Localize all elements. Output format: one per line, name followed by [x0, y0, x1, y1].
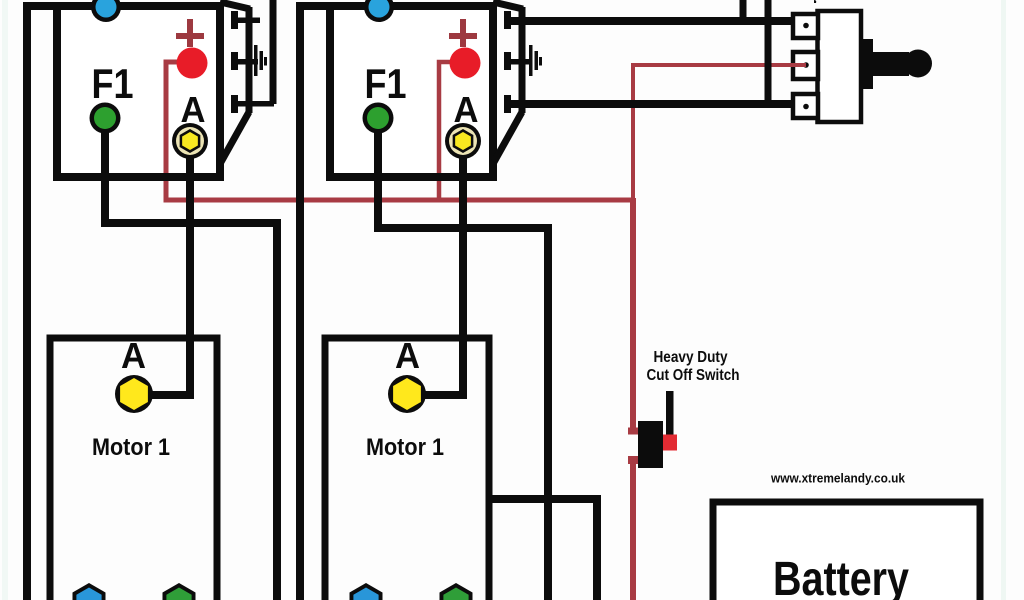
svg-text:Motor 1: Motor 1	[92, 434, 170, 461]
svg-text:F1: F1	[365, 60, 407, 107]
svg-text:Cut Off Switch: Cut Off Switch	[647, 367, 740, 384]
svg-text:F1: F1	[92, 60, 134, 107]
svg-text:Heavy Duty: Heavy Duty	[654, 349, 728, 366]
svg-text:Motor 1: Motor 1	[366, 434, 444, 461]
svg-text:A: A	[121, 335, 146, 376]
svg-text:A: A	[395, 335, 420, 376]
svg-text:www.xtremelandy.co.uk: www.xtremelandy.co.uk	[770, 472, 905, 486]
svg-text:Battery: Battery	[773, 553, 909, 600]
